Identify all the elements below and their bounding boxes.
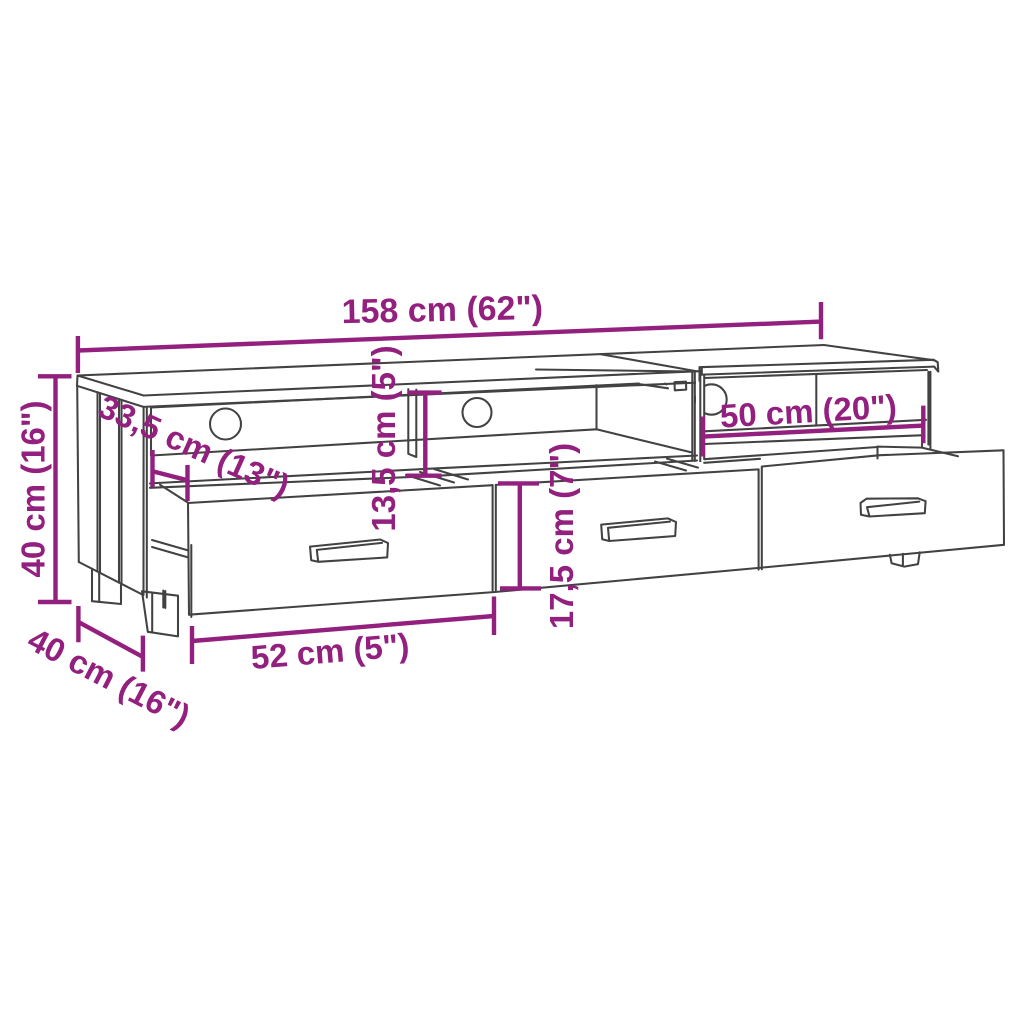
svg-text:17,5 cm (7"): 17,5 cm (7") [543,443,580,629]
svg-text:40 cm (16"): 40 cm (16") [15,400,52,577]
svg-text:13,5 cm (5"): 13,5 cm (5") [365,345,402,531]
svg-text:158 cm (62"): 158 cm (62") [341,289,543,331]
